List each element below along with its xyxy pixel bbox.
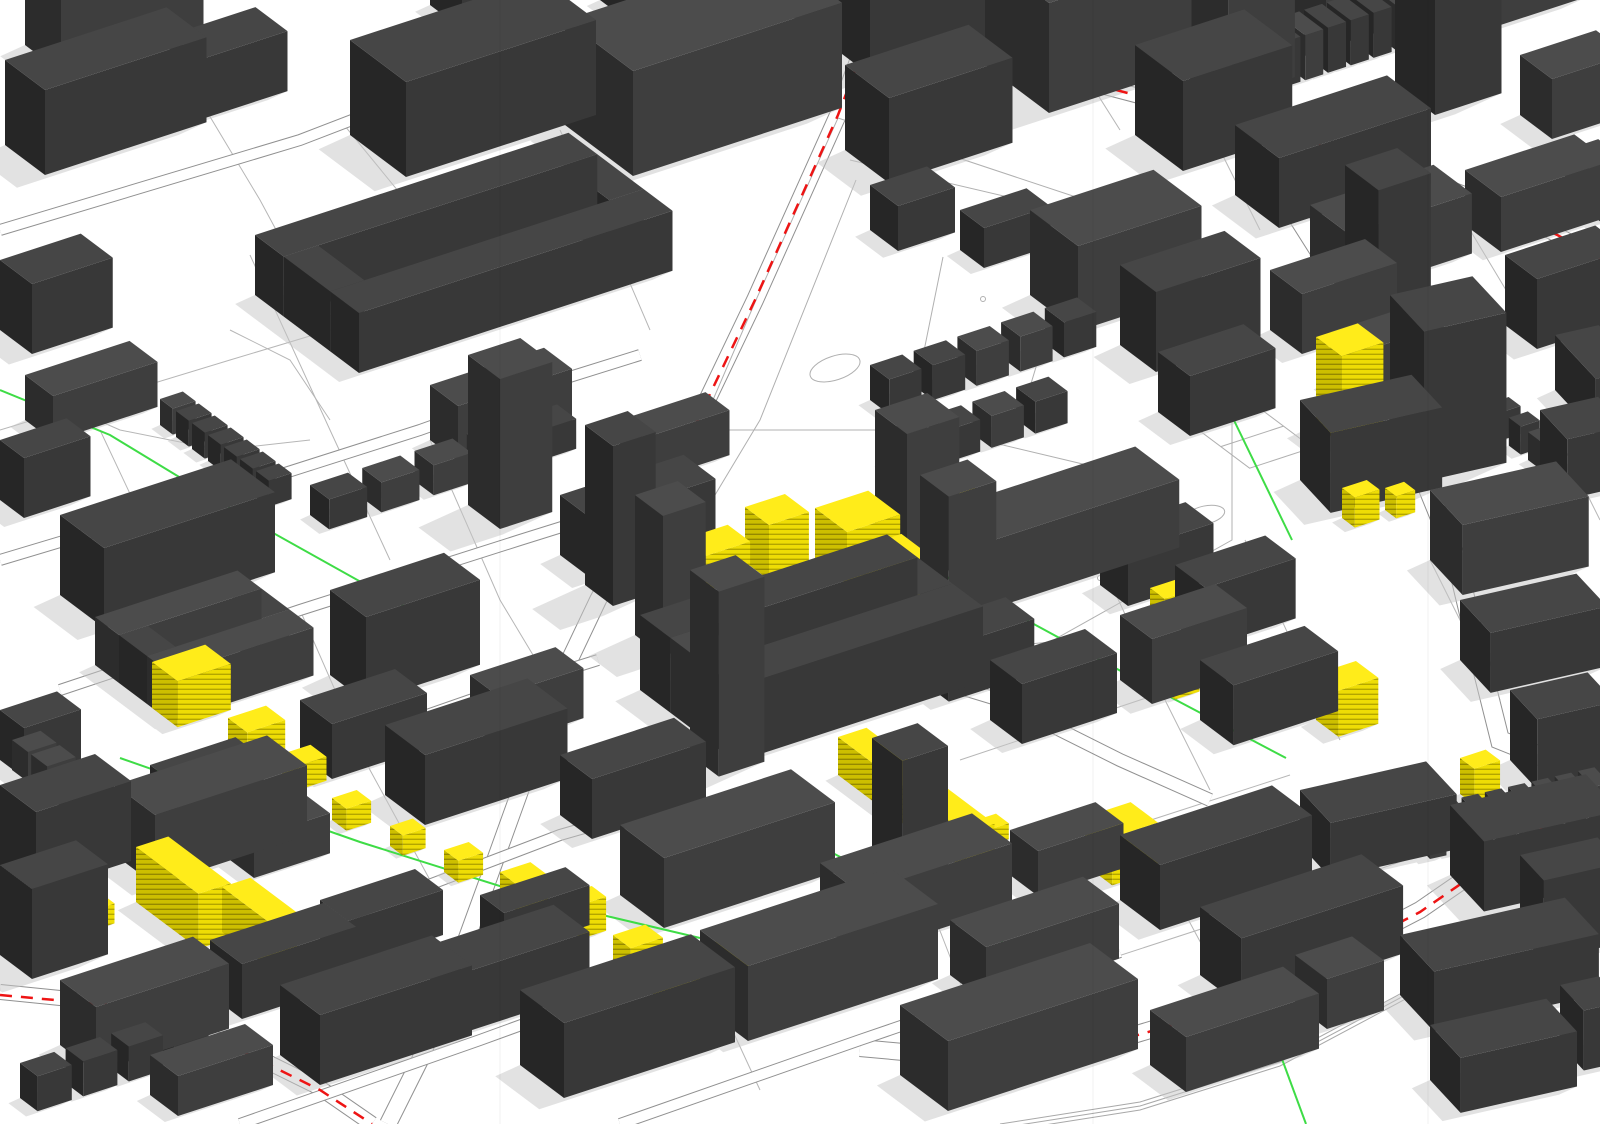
city-model-viewport (0, 0, 1600, 1124)
facade-front (1328, 22, 1346, 73)
building (0, 840, 108, 979)
highlighted-building (1342, 480, 1380, 528)
facade-left (468, 355, 500, 529)
facade-front (500, 362, 552, 529)
highlighted-building (1385, 482, 1415, 519)
facade-front (1584, 1002, 1600, 1071)
facade-front (719, 577, 765, 777)
city-3d-map (0, 0, 1600, 1124)
facade-front (1305, 29, 1323, 80)
facade-front (1374, 7, 1392, 58)
building (66, 1037, 118, 1096)
facade-front (1351, 14, 1369, 65)
building (468, 338, 552, 529)
facade-left (585, 425, 613, 606)
building (20, 1052, 72, 1111)
